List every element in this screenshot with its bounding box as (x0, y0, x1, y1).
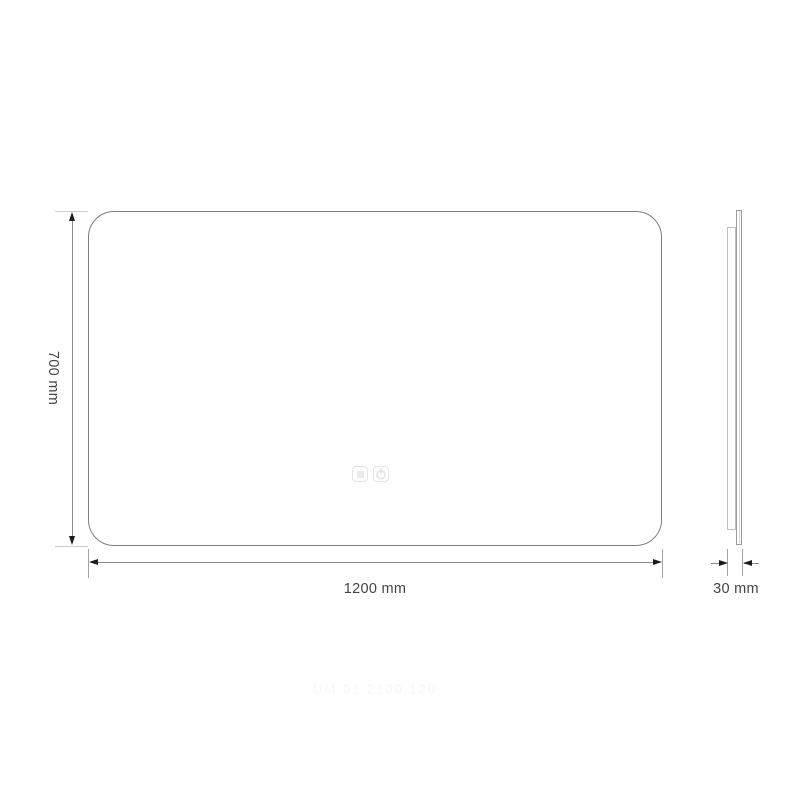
height-arrow-up-icon (69, 212, 75, 221)
light-square-glyph (357, 471, 364, 478)
mirror-side-glass-inner-line (739, 211, 740, 543)
width-arrow-right-icon (653, 559, 662, 565)
mirror-front-view (88, 211, 662, 546)
height-dimension-label: 700 mm (45, 351, 61, 405)
width-dimension-label: 1200 mm (344, 581, 407, 597)
depth-dimension-label: 30 mm (713, 581, 759, 597)
watermark-text: UM 01 2100 120 (313, 682, 437, 697)
height-extension-line-bottom (55, 546, 88, 547)
depth-arrow-left-icon (743, 560, 752, 566)
width-extension-line-right (662, 549, 663, 578)
height-dimension-line (72, 214, 73, 543)
height-arrow-down-icon (69, 536, 75, 545)
mirror-technical-drawing: 700 mm 1200 mm 30 mm UM 01 2100 120 (0, 0, 800, 800)
light-touch-icon (352, 466, 368, 482)
power-touch-icon (373, 466, 389, 482)
width-arrow-left-icon (89, 559, 98, 565)
power-symbol-glyph (375, 468, 387, 480)
width-dimension-line (91, 562, 660, 563)
mirror-side-back-panel (727, 227, 736, 530)
depth-arrow-right-icon (719, 560, 728, 566)
